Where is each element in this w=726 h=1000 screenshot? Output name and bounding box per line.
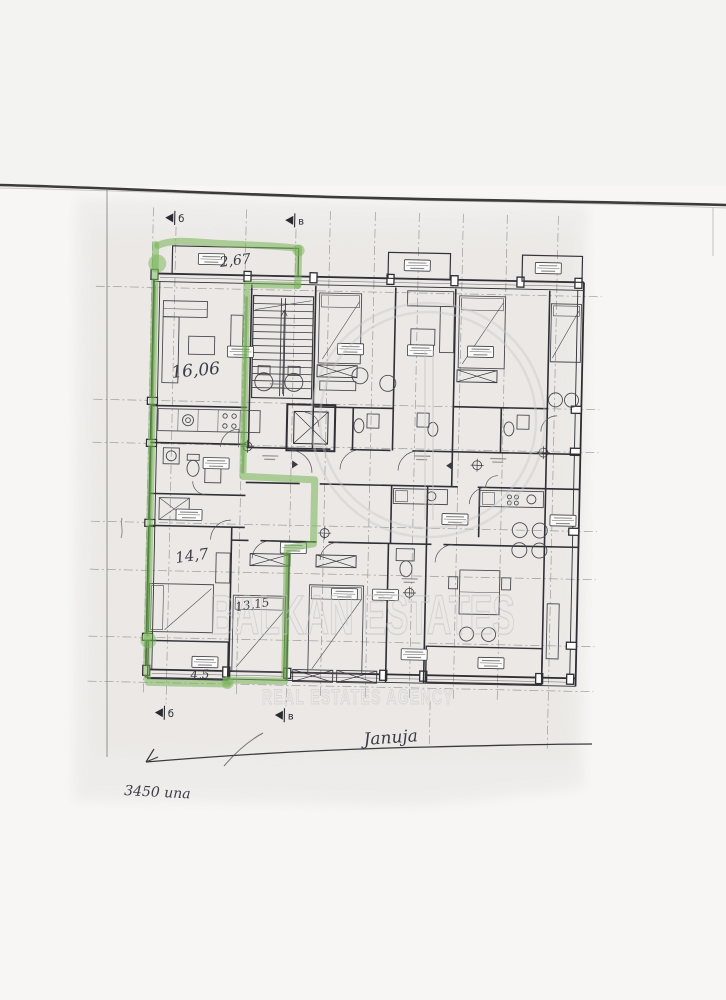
area-label-living-room: 16,06 [171,359,221,383]
watermark-subtitle: REAL ESTATES AGENCY [262,686,454,709]
scanned-floor-plan-page: 2,67 16,06 14,7 13,15 4,5 б в б в [0,0,726,1000]
watermark-title: BALKAN ESTATES [210,583,515,646]
area-label-bottom-balcony: 4,5 [189,667,210,682]
handwritten-note-middle: Januja [360,726,419,750]
section-marker-letter: б [168,709,174,720]
section-marker-letter: в [298,216,304,227]
floor-plan-scan: 2,67 16,06 14,7 13,15 4,5 б в б в [0,0,726,1000]
section-marker-letter: б [178,214,184,225]
section-marker-letter: в [288,711,294,722]
